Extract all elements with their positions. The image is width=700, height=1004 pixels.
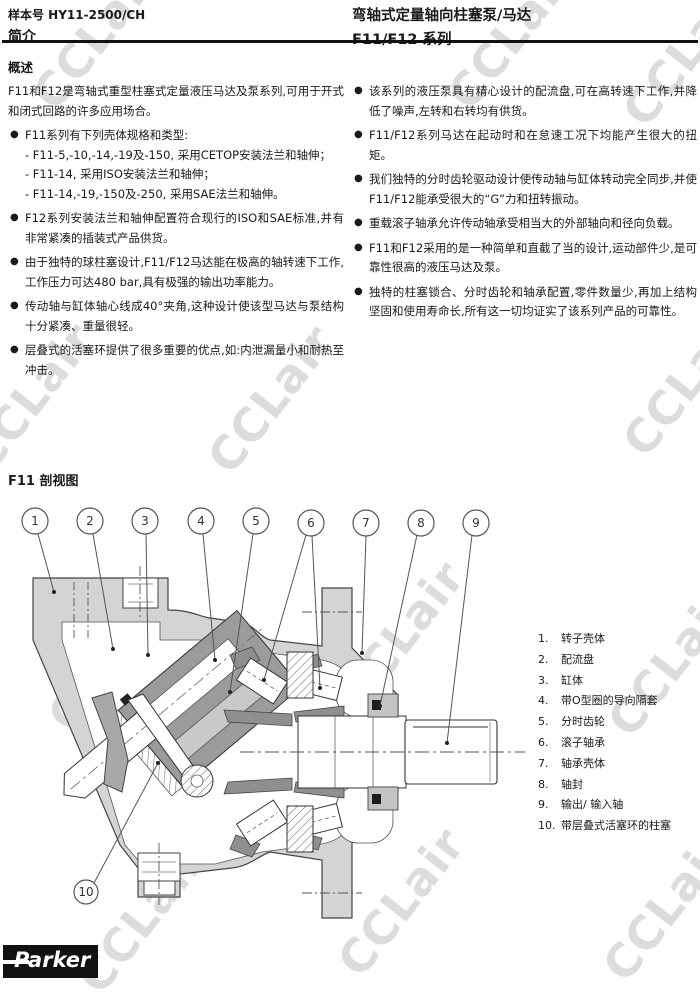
legend-item: 10.带层叠式活塞环的柱塞 xyxy=(538,816,671,837)
timing-gear-section xyxy=(287,806,313,852)
legend-num: 7. xyxy=(538,754,561,775)
bullet-text: F11和F12采用的是一种简单和直截了当的设计,运动部件少,是可靠性很高的液压马… xyxy=(369,239,697,278)
timing-gear-section xyxy=(287,652,313,698)
svg-text:2: 2 xyxy=(86,514,94,528)
legend-label: 带层叠式活塞环的柱塞 xyxy=(561,816,671,837)
bullet-item: ● 层叠式的活塞环提供了很多重要的优点,如:内泄漏量小和耐热至冲击。 xyxy=(8,341,344,380)
bullet-icon: ● xyxy=(10,296,19,316)
legend-num: 5. xyxy=(538,712,561,733)
callout-6: 6 xyxy=(298,510,324,536)
bullet-icon: ● xyxy=(10,340,19,360)
bullet-subline: - F11-5,-10,-14,-19及-150, 采用CETOP安装法兰和轴伸… xyxy=(25,146,344,166)
callout-7: 7 xyxy=(353,510,379,536)
legend-num: 1. xyxy=(538,629,561,650)
bullet-item: ● F11/F12系列马达在起动时和在怠速工况下均能产生很大的扭矩。 xyxy=(352,126,697,165)
legend-item: 9.输出/ 输入轴 xyxy=(538,795,671,816)
svg-text:9: 9 xyxy=(472,516,480,530)
bullet-item: ● F11和F12采用的是一种简单和直截了当的设计,运动部件少,是可靠性很高的液… xyxy=(352,239,697,278)
bullet-item: ● F12系列安装法兰和轴伸配置符合现行的ISO和SAE标准,并有非常紧凑的插装… xyxy=(8,209,344,248)
bullet-icon: ● xyxy=(354,169,363,189)
legend-label: 带O型圈的导向隔套 xyxy=(561,691,658,712)
bullet-icon: ● xyxy=(354,125,363,145)
bullet-icon: ● xyxy=(354,81,363,101)
overview-left-column: F11和F12是弯轴式重型柱塞式定量液压马达及泵系列,可用于开式和闭式回路的许多… xyxy=(8,82,344,385)
svg-text:8: 8 xyxy=(417,516,425,530)
legend-item: 1.转子壳体 xyxy=(538,629,671,650)
svg-text:5: 5 xyxy=(252,514,260,528)
overview-heading: 概述 xyxy=(8,57,33,76)
doc-title-line1: 弯轴式定量轴向柱塞泵/马达 xyxy=(352,4,531,25)
legend-label: 分时齿轮 xyxy=(561,712,605,733)
bullet-text: 我们独特的分时齿轮驱动设计使传动轴与缸体转动完全同步,并使F11/F12能承受很… xyxy=(369,170,697,209)
legend-item: 7.轴承壳体 xyxy=(538,754,671,775)
callout-8: 8 xyxy=(408,510,434,536)
bullet-item: ● 由于独特的球柱塞设计,F11/F12马达能在极高的轴转速下工作,工作压力可达… xyxy=(8,253,344,292)
parker-logo: Parker xyxy=(3,945,98,978)
legend-label: 输出/ 输入轴 xyxy=(561,795,623,816)
figure-heading: F11 剖视图 xyxy=(8,470,79,489)
legend-item: 2.配流盘 xyxy=(538,650,671,671)
legend-item: 3.缸体 xyxy=(538,671,671,692)
callout-1: 1 xyxy=(22,508,48,534)
legend-num: 4. xyxy=(538,691,561,712)
legend-item: 6.滚子轴承 xyxy=(538,733,671,754)
bullet-subline: - F11-14, 采用ISO安装法兰和轴伸； xyxy=(25,165,344,185)
callout-9: 9 xyxy=(463,510,489,536)
doc-number: 样本号 HY11-2500/CH xyxy=(8,6,145,23)
bullet-text: F12系列安装法兰和轴伸配置符合现行的ISO和SAE标准,并有非常紧凑的插装式产… xyxy=(25,209,344,248)
intro-paragraph: F11和F12是弯轴式重型柱塞式定量液压马达及泵系列,可用于开式和闭式回路的许多… xyxy=(8,82,344,121)
legend-label: 滚子轴承 xyxy=(561,733,605,754)
legend-label: 缸体 xyxy=(561,671,583,692)
callout-10: 10 xyxy=(74,880,98,904)
bullet-text: F11/F12系列马达在起动时和在怠速工况下均能产生很大的扭矩。 xyxy=(369,126,697,165)
figure-legend: 1.转子壳体 2.配流盘 3.缸体 4.带O型圈的导向隔套 5.分时齿轮 6.滚… xyxy=(538,629,671,837)
bullet-subline: - F11-14,-19,-150及-250, 采用SAE法兰和轴伸。 xyxy=(25,185,344,205)
parker-logo-text: Parker xyxy=(14,948,90,972)
bullet-icon: ● xyxy=(354,213,363,233)
bullet-icon: ● xyxy=(10,208,19,228)
svg-text:3: 3 xyxy=(141,514,149,528)
bullet-icon: ● xyxy=(354,282,363,302)
legend-item: 5.分时齿轮 xyxy=(538,712,671,733)
bullet-text: 独特的柱塞锁合、分时齿轮和轴承配置,零件数量少,再加上结构坚固和使用寿命长,所有… xyxy=(369,283,697,322)
svg-text:10: 10 xyxy=(78,885,93,899)
callout-3: 3 xyxy=(132,508,158,534)
legend-num: 3. xyxy=(538,671,561,692)
legend-num: 8. xyxy=(538,775,561,796)
bullet-text: 重载滚子轴承允许传动轴承受相当大的外部轴向和径向负载。 xyxy=(369,214,697,234)
callout-2: 2 xyxy=(77,508,103,534)
legend-num: 6. xyxy=(538,733,561,754)
bullet-text: F11系列有下列壳体规格和类型: xyxy=(25,126,344,146)
legend-label: 配流盘 xyxy=(561,650,594,671)
bullet-item: ● 我们独特的分时齿轮驱动设计使传动轴与缸体转动完全同步,并使F11/F12能承… xyxy=(352,170,697,209)
doc-title-line2: F11/F12 系列 xyxy=(352,28,531,49)
bullet-text: 由于独特的球柱塞设计,F11/F12马达能在极高的轴转速下工作,工作压力可达48… xyxy=(25,253,344,292)
bullet-item: ● 独特的柱塞锁合、分时齿轮和轴承配置,零件数量少,再加上结构坚固和使用寿命长,… xyxy=(352,283,697,322)
svg-text:4: 4 xyxy=(197,514,205,528)
bullet-text: 层叠式的活塞环提供了很多重要的优点,如:内泄漏量小和耐热至冲击。 xyxy=(25,341,344,380)
shaft-seal xyxy=(372,794,381,804)
bullet-item: ● 重载滚子轴承允许传动轴承受相当大的外部轴向和径向负载。 xyxy=(352,214,697,234)
legend-label: 轴封 xyxy=(561,775,583,796)
bullet-icon: ● xyxy=(10,125,19,145)
legend-label: 轴承壳体 xyxy=(561,754,605,775)
legend-item: 8.轴封 xyxy=(538,775,671,796)
header-rule xyxy=(2,40,698,43)
legend-num: 2. xyxy=(538,650,561,671)
callout-5: 5 xyxy=(243,508,269,534)
svg-text:7: 7 xyxy=(362,516,370,530)
callout-4: 4 xyxy=(188,508,214,534)
svg-text:6: 6 xyxy=(307,516,315,530)
overview-right-column: ● 该系列的液压泵具有精心设计的配流盘,可在高转速下工作,并降低了噪声,左转和右… xyxy=(352,82,697,327)
legend-num: 9. xyxy=(538,795,561,816)
bullet-item: ● 该系列的液压泵具有精心设计的配流盘,可在高转速下工作,并降低了噪声,左转和右… xyxy=(352,82,697,121)
bullet-icon: ● xyxy=(10,252,19,272)
bullet-item: ● F11系列有下列壳体规格和类型: - F11-5,-10,-14,-19及-… xyxy=(8,126,344,204)
legend-item: 4.带O型圈的导向隔套 xyxy=(538,691,671,712)
doc-section: 简介 xyxy=(8,26,145,46)
bullet-text: 传动轴与缸体轴心线成40°夹角,这种设计使该型马达与泵结构十分紧凑、重量很轻。 xyxy=(25,297,344,336)
bullet-icon: ● xyxy=(354,238,363,258)
legend-num: 10. xyxy=(538,816,561,837)
legend-label: 转子壳体 xyxy=(561,629,605,650)
bullet-text: 该系列的液压泵具有精心设计的配流盘,可在高转速下工作,并降低了噪声,左转和右转均… xyxy=(369,82,697,121)
svg-text:1: 1 xyxy=(31,514,39,528)
bullet-item: ● 传动轴与缸体轴心线成40°夹角,这种设计使该型马达与泵结构十分紧凑、重量很轻… xyxy=(8,297,344,336)
